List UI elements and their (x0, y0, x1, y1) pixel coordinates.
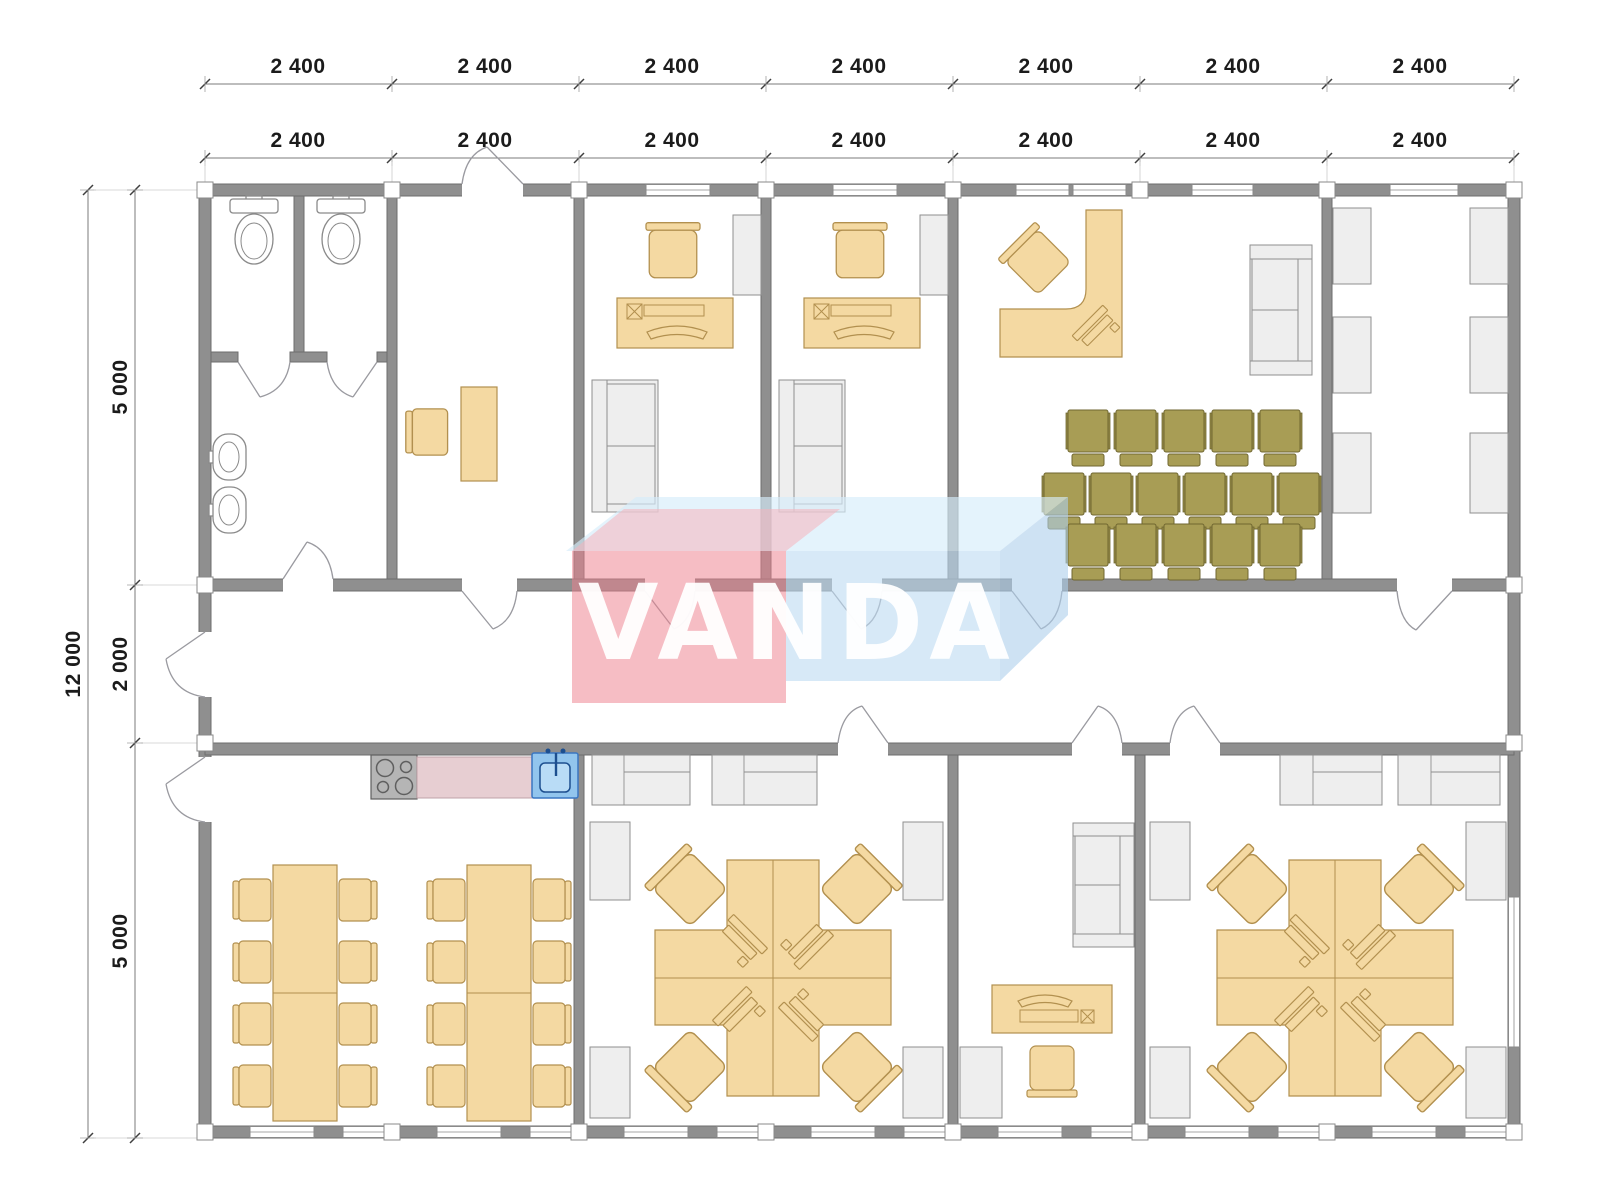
dim-label: 2 400 (1018, 55, 1073, 78)
dim-label: 2 400 (831, 55, 886, 78)
dim-label: 2 400 (644, 55, 699, 78)
room-entry-office (406, 387, 497, 481)
room-open-office-1 (590, 755, 943, 1118)
dim-label: 2 400 (1205, 129, 1260, 152)
wall-partition (1322, 196, 1332, 579)
workstation-cluster (644, 843, 903, 1113)
toilet-icon (317, 196, 365, 264)
dim-label: 2 400 (1205, 55, 1260, 78)
watermark: VANDA (566, 497, 1068, 703)
conference-chair-row (1042, 473, 1321, 529)
conference-chair-row (1066, 410, 1302, 466)
dim-label: 2 400 (270, 55, 325, 78)
storage-cabinet (1333, 433, 1371, 513)
window (1509, 897, 1520, 1047)
cabinet (960, 1047, 1002, 1118)
wall-cabinets (592, 755, 817, 805)
room-canteen (233, 749, 578, 1122)
floor-plan-canvas: 2 400 2 400 2 400 2 400 2 400 2 400 2 40… (0, 0, 1600, 1200)
workstation-cluster (1206, 843, 1465, 1113)
storage-cabinet (1333, 317, 1371, 393)
wall-wc-stall (290, 352, 327, 362)
presenter-chair (998, 222, 1073, 297)
dim-label: 5 000 (109, 913, 132, 968)
cabinet (1466, 822, 1506, 900)
sofa (1073, 823, 1134, 947)
room-office-2 (779, 215, 948, 512)
storage-cabinet (1470, 317, 1508, 393)
dim-label: 2 000 (109, 636, 132, 691)
wall-partition (1135, 755, 1145, 1126)
wall-partition (574, 196, 584, 579)
dim-label: 2 400 (457, 129, 512, 152)
cabinet (1466, 1047, 1506, 1118)
dim-label: 2 400 (1018, 129, 1073, 152)
dim-label: 5 000 (109, 359, 132, 414)
room-storage (1333, 208, 1508, 513)
kitchen-counter (417, 757, 532, 798)
sofa (592, 380, 658, 512)
kitchen-sink-icon (532, 749, 578, 799)
desk (461, 387, 497, 481)
dim-label: 2 400 (1392, 55, 1447, 78)
storage-cabinet (1470, 208, 1508, 284)
room-manager-office (960, 823, 1134, 1118)
sink-icon (209, 487, 246, 533)
storage-cabinet (1470, 433, 1508, 513)
cabinet (733, 215, 761, 295)
storage-cabinet (1333, 208, 1371, 284)
cabinet (1150, 822, 1190, 900)
cabinet (590, 1047, 630, 1118)
dimension-row-outer: 2 400 2 400 2 400 2 400 2 400 2 400 2 40… (200, 55, 1519, 92)
cabinet (920, 215, 948, 295)
wall-partition (387, 196, 397, 579)
room-wc (209, 196, 365, 533)
room-office-1 (592, 215, 761, 512)
cabinet (903, 1047, 943, 1118)
floor-plan-page: 2 400 2 400 2 400 2 400 2 400 2 400 2 40… (0, 0, 1600, 1200)
office-chair (833, 223, 887, 278)
dim-label: 2 400 (831, 129, 886, 152)
conference-chair-row (1066, 524, 1302, 580)
dim-label: 2 400 (457, 55, 512, 78)
cabinet (1150, 1047, 1190, 1118)
desk (992, 985, 1112, 1033)
cabinet (590, 822, 630, 900)
wall-wc-divider (294, 196, 304, 362)
dining-table (427, 865, 571, 1121)
l-desk (1000, 210, 1122, 357)
wall-partition (574, 755, 584, 1126)
dining-table (233, 865, 377, 1121)
wall-wc-stall (211, 352, 238, 362)
office-chair (406, 409, 448, 455)
wall-partition (948, 755, 958, 1126)
wall-wc-stall (377, 352, 387, 362)
office-chair (646, 223, 700, 278)
dim-label: 2 400 (644, 129, 699, 152)
toilet-icon (230, 196, 278, 264)
dim-label: 2 400 (270, 129, 325, 152)
wall-cabinets (1280, 755, 1500, 805)
sink-icon (209, 434, 246, 480)
office-chair (1027, 1046, 1077, 1097)
sofa (1250, 245, 1312, 375)
watermark-text: VANDA (578, 562, 1016, 684)
cabinet (903, 822, 943, 900)
dim-label: 2 400 (1392, 129, 1447, 152)
dimension-left: 12 000 5 000 2 000 5 000 (62, 185, 199, 1143)
room-open-office-2 (1150, 755, 1506, 1118)
dimension-row-inner: 2 400 2 400 2 400 2 400 2 400 2 400 2 40… (200, 129, 1519, 184)
sofa (779, 380, 845, 512)
dim-label: 12 000 (62, 630, 85, 697)
